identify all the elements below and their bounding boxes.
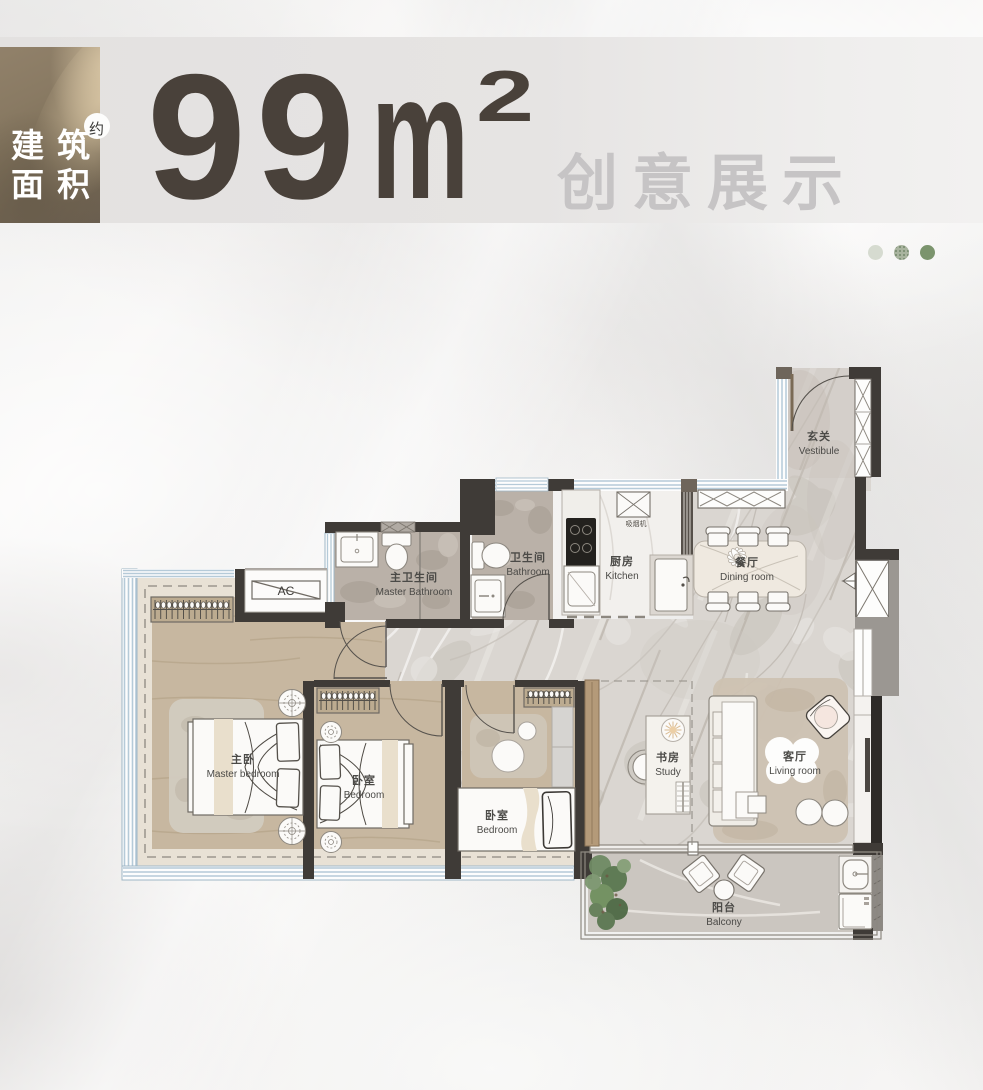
svg-text:卧室: 卧室	[485, 808, 509, 822]
svg-text:Bathroom: Bathroom	[506, 567, 549, 578]
svg-text:Vestibule: Vestibule	[799, 446, 840, 457]
svg-text:AC: AC	[278, 584, 295, 598]
svg-text:Master Bathroom: Master Bathroom	[376, 587, 453, 598]
svg-text:Master bedroom: Master bedroom	[207, 769, 280, 780]
svg-text:书房: 书房	[656, 750, 680, 764]
svg-text:卧室: 卧室	[352, 773, 376, 787]
svg-text:Bedroom: Bedroom	[344, 790, 385, 801]
svg-text:Dining room: Dining room	[720, 572, 774, 583]
svg-text:吸烟机: 吸烟机	[626, 519, 647, 528]
svg-text:阳台: 阳台	[712, 900, 736, 914]
svg-text:主卫生间: 主卫生间	[390, 570, 438, 584]
svg-text:Kitchen: Kitchen	[605, 571, 638, 582]
svg-text:客厅: 客厅	[782, 749, 807, 763]
svg-text:卫生间: 卫生间	[510, 550, 546, 564]
svg-text:Study: Study	[655, 767, 681, 778]
svg-text:Living room: Living room	[769, 766, 821, 777]
svg-text:餐厅: 餐厅	[734, 555, 759, 569]
svg-text:Balcony: Balcony	[706, 917, 742, 928]
svg-text:厨房: 厨房	[610, 554, 634, 568]
svg-text:玄关: 玄关	[807, 429, 831, 443]
svg-text:Bedroom: Bedroom	[477, 825, 518, 836]
svg-text:主卧: 主卧	[231, 752, 255, 766]
